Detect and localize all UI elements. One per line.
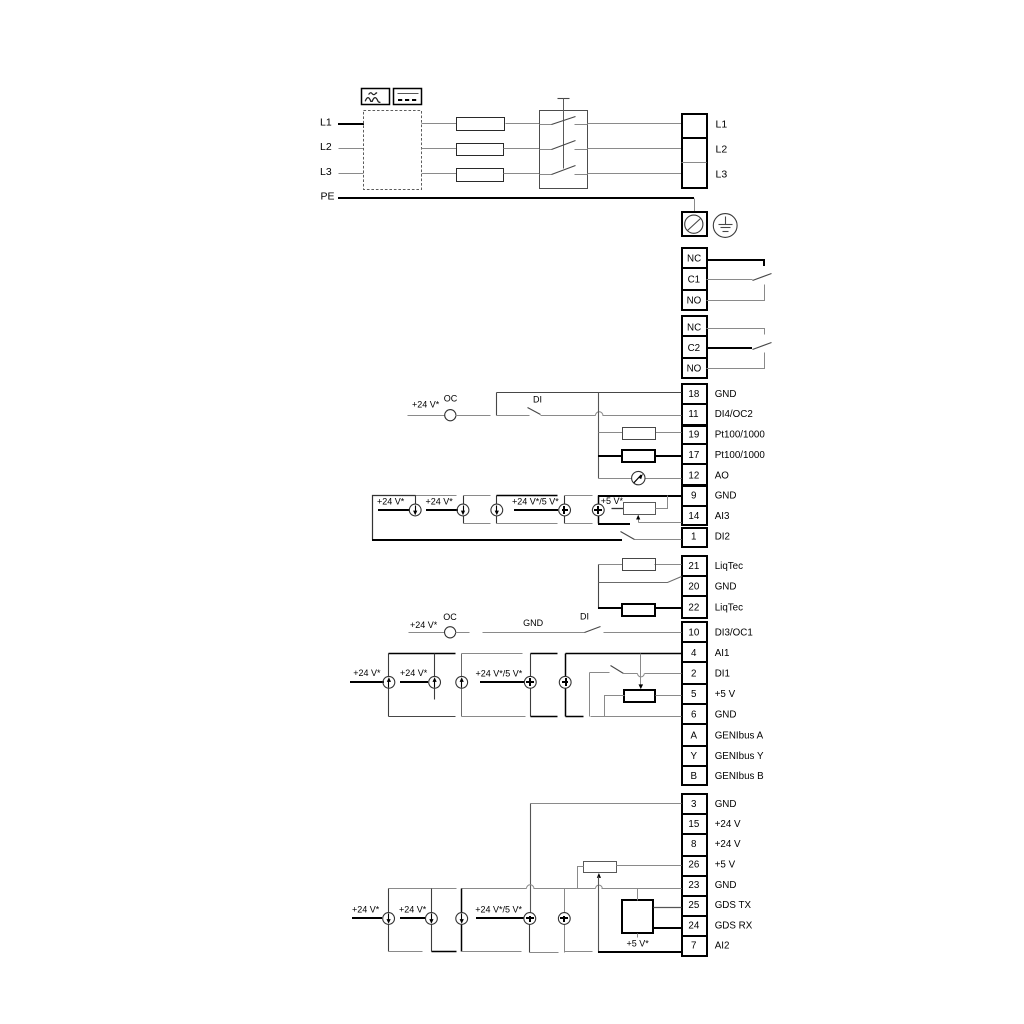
svg-text:DI: DI	[580, 611, 589, 621]
svg-text:AO: AO	[715, 470, 730, 481]
svg-text:25: 25	[688, 900, 699, 911]
svg-text:+24 V*: +24 V*	[410, 620, 438, 630]
svg-text:GND: GND	[715, 491, 737, 502]
svg-text:GND: GND	[523, 618, 544, 628]
svg-text:26: 26	[688, 860, 699, 871]
svg-text:7: 7	[691, 941, 696, 952]
svg-text:LiqTec: LiqTec	[715, 602, 743, 613]
svg-text:DI1: DI1	[715, 669, 730, 680]
svg-text:L1: L1	[716, 119, 728, 131]
svg-text:+24 V*: +24 V*	[412, 400, 440, 410]
svg-text:GND: GND	[715, 389, 737, 400]
svg-text:18: 18	[688, 389, 699, 400]
svg-text:+24 V: +24 V	[715, 839, 741, 850]
svg-text:+5 V: +5 V	[715, 689, 736, 700]
svg-text:LiqTec: LiqTec	[715, 561, 743, 572]
svg-text:20: 20	[688, 582, 699, 593]
svg-text:5: 5	[691, 689, 697, 700]
svg-text:L1: L1	[320, 116, 332, 128]
svg-text:A: A	[691, 731, 698, 742]
svg-text:OC: OC	[444, 393, 458, 403]
svg-text:GND: GND	[715, 582, 737, 593]
svg-text:+24 V*/5 V*: +24 V*/5 V*	[476, 668, 523, 678]
svg-text:12: 12	[688, 470, 699, 481]
svg-text:Pt100/1000: Pt100/1000	[715, 430, 766, 441]
svg-text:19: 19	[688, 430, 699, 441]
svg-text:3: 3	[691, 799, 697, 810]
svg-text:+5 V*: +5 V*	[627, 939, 650, 949]
svg-text:Y: Y	[691, 751, 698, 762]
svg-text:L2: L2	[716, 143, 728, 155]
svg-text:DI: DI	[533, 395, 542, 405]
svg-text:B: B	[691, 771, 698, 782]
svg-text:Pt100/1000: Pt100/1000	[715, 450, 766, 461]
svg-text:NC: NC	[687, 254, 701, 265]
svg-text:+24 V*: +24 V*	[426, 497, 454, 507]
svg-text:1: 1	[691, 532, 696, 543]
svg-text:15: 15	[688, 819, 699, 830]
svg-text:GND: GND	[715, 710, 737, 721]
svg-text:NO: NO	[687, 364, 702, 375]
svg-text:C2: C2	[688, 343, 701, 354]
svg-text:+5 V*: +5 V*	[601, 496, 624, 506]
svg-text:L3: L3	[716, 169, 728, 181]
svg-text:22: 22	[688, 602, 699, 613]
svg-text:10: 10	[688, 628, 699, 639]
svg-text:L2: L2	[320, 141, 332, 153]
svg-text:GENIbus A: GENIbus A	[715, 731, 764, 742]
svg-text:+24 V*/5 V*: +24 V*/5 V*	[475, 905, 522, 915]
svg-text:21: 21	[688, 561, 699, 572]
svg-text:+24 V*: +24 V*	[352, 905, 380, 915]
svg-text:+24 V*: +24 V*	[377, 497, 405, 507]
svg-text:AI3: AI3	[715, 511, 730, 522]
svg-text:14: 14	[688, 511, 699, 522]
svg-text:+24 V: +24 V	[715, 819, 741, 830]
svg-text:+24 V*: +24 V*	[400, 668, 428, 678]
svg-text:+5 V: +5 V	[715, 860, 736, 871]
svg-text:DI3/OC1: DI3/OC1	[715, 628, 753, 639]
svg-text:23: 23	[688, 880, 699, 891]
svg-text:2: 2	[691, 669, 696, 680]
svg-text:17: 17	[688, 450, 699, 461]
svg-text:11: 11	[688, 409, 698, 420]
svg-text:NC: NC	[687, 323, 701, 334]
svg-text:GDS TX: GDS TX	[715, 900, 752, 911]
svg-text:8: 8	[691, 839, 697, 850]
svg-text:GDS RX: GDS RX	[715, 920, 753, 931]
svg-text:C1: C1	[688, 274, 701, 285]
svg-text:9: 9	[691, 491, 696, 502]
svg-text:DI2: DI2	[715, 532, 730, 543]
svg-text:GND: GND	[715, 799, 737, 810]
svg-text:GND: GND	[715, 880, 737, 891]
svg-text:L3: L3	[320, 166, 332, 178]
svg-text:+24 V*/5 V*: +24 V*/5 V*	[512, 497, 559, 507]
svg-text:PE: PE	[321, 190, 335, 202]
svg-text:+24 V*: +24 V*	[399, 905, 427, 915]
svg-text:4: 4	[691, 648, 697, 659]
svg-text:24: 24	[688, 920, 699, 931]
svg-text:GENIbus B: GENIbus B	[715, 771, 764, 782]
svg-text:NO: NO	[687, 295, 702, 306]
svg-text:6: 6	[691, 710, 697, 721]
svg-text:AI2: AI2	[715, 941, 730, 952]
svg-text:DI4/OC2: DI4/OC2	[715, 409, 753, 420]
svg-text:OC: OC	[443, 612, 457, 622]
svg-text:+24 V*: +24 V*	[353, 668, 381, 678]
svg-text:AI1: AI1	[715, 648, 730, 659]
svg-text:GENIbus Y: GENIbus Y	[715, 751, 764, 762]
